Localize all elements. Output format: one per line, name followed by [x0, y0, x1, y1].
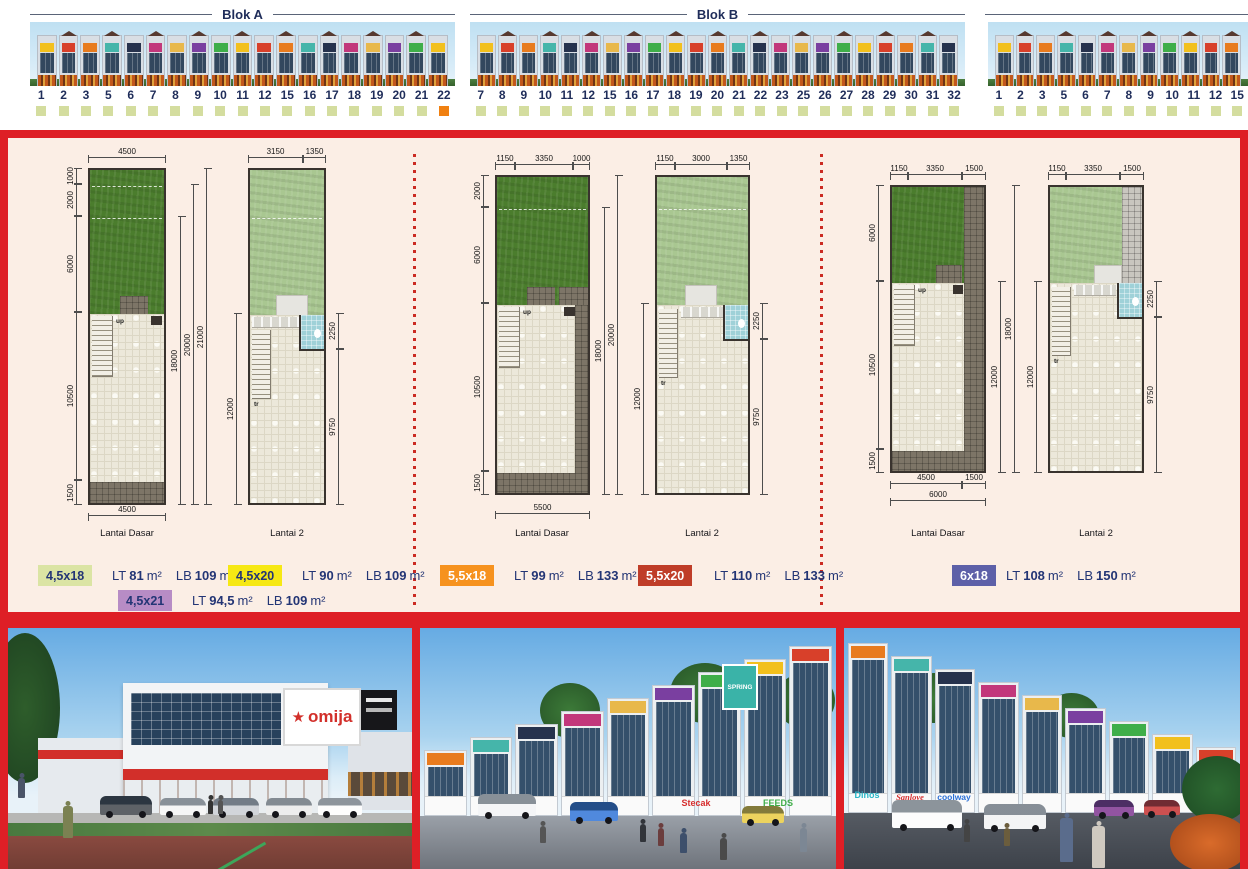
car: [100, 796, 152, 815]
facade-unit: [80, 35, 100, 86]
dim-bottom: 4500: [890, 483, 962, 484]
facade-unit: [939, 35, 958, 86]
roof-gable: [148, 31, 164, 36]
roof-gable: [61, 31, 77, 36]
unit-number: 8: [172, 88, 179, 102]
roof-gable: [710, 31, 726, 36]
setback-dashline: [92, 186, 162, 187]
spring-sign-text: SPRING: [728, 684, 753, 691]
dim-top: 1150: [1048, 174, 1066, 175]
dim-left: 6000: [76, 216, 77, 312]
facade-window: [921, 53, 934, 73]
header-rule: [748, 14, 965, 15]
dim-right: 2250: [1156, 281, 1157, 317]
coolway-sign-text: coolway: [932, 792, 976, 802]
bathroom: [299, 315, 324, 351]
facade-unit: [813, 35, 832, 86]
facade-unit: [146, 35, 166, 86]
blok-a-unit-row: 123567891011121516171819202122: [30, 88, 455, 116]
billboard: [851, 646, 885, 658]
cyclist-figure: [63, 806, 73, 838]
unit-status-square: [648, 106, 658, 116]
shophouse-slab: [607, 698, 650, 816]
unit-status-square: [669, 106, 679, 116]
facade-window: [257, 53, 271, 73]
facade-signboard: [1143, 43, 1156, 52]
facade-unit: [167, 35, 187, 86]
unit-cell: 3: [75, 88, 97, 116]
up-label: up: [918, 287, 926, 294]
person-figure: [800, 828, 807, 852]
dim-left: 12000: [236, 313, 237, 505]
plan-g3-lantai-dasar: up: [890, 185, 986, 473]
unit-number: 5: [105, 88, 112, 102]
unit-status-square: [842, 106, 852, 116]
facade-window: [1019, 53, 1032, 73]
car: [892, 800, 962, 828]
unit-number: 19: [689, 88, 702, 102]
facade-unit: [1181, 35, 1200, 86]
header-rule: [470, 14, 687, 15]
unit-status-square: [994, 106, 1004, 116]
facade-storefront: [1141, 75, 1158, 86]
facade-signboard: [900, 43, 913, 52]
facade-window: [774, 53, 787, 73]
facade-signboard: [753, 43, 766, 52]
roof-gable: [836, 31, 852, 36]
car: [266, 798, 312, 815]
unit-cell: 8: [492, 88, 514, 116]
facade-signboard: [431, 43, 445, 52]
unit-number: 7: [150, 88, 157, 102]
person-figure: [720, 838, 727, 860]
type-chip-45x20: 4,5x20: [228, 565, 282, 586]
unit-cell: 7: [470, 88, 492, 116]
blok-a-elevation: [30, 22, 455, 86]
facade-storefront: [1223, 75, 1240, 86]
side-roof: [1122, 187, 1144, 283]
unit-cell: 32: [943, 88, 965, 116]
shophouse-slab: [652, 685, 695, 816]
facade-signboard: [83, 43, 97, 52]
facade-signboard: [127, 43, 141, 52]
plan-caption: Lantai Dasar: [100, 528, 154, 539]
unit-status-square: [282, 106, 292, 116]
unit-cell: 10: [1161, 88, 1183, 116]
unit-cell: 12: [578, 88, 600, 116]
unit-status-square: [626, 106, 636, 116]
type-spec-45x20: LT90m² LB109m²: [302, 565, 425, 586]
unit-number: 9: [520, 88, 527, 102]
unit-status-square: [349, 106, 359, 116]
tr-label: tr: [661, 380, 666, 387]
shop-window: [895, 673, 927, 793]
plan-g1-lantai-dasar: up: [88, 168, 166, 505]
blok-b-title: Blok B: [687, 7, 748, 22]
facade-signboard: [1184, 43, 1197, 52]
roof-gable: [191, 31, 207, 36]
shop-window: [1113, 738, 1145, 793]
unit-number: 3: [83, 88, 90, 102]
facade-storefront: [147, 75, 165, 86]
facade-window: [480, 53, 493, 73]
facade-signboard: [409, 43, 423, 52]
unit-status-square: [1102, 106, 1112, 116]
unit-number: 6: [1082, 88, 1089, 102]
roof-gable: [1100, 31, 1116, 36]
unit-number: 32: [947, 88, 960, 102]
facade-window: [105, 53, 119, 73]
facade-storefront: [625, 75, 642, 86]
dim-left: 1000: [76, 168, 77, 184]
facade-storefront: [103, 75, 121, 86]
person-figure: [658, 828, 664, 846]
unit-number: 7: [1104, 88, 1111, 102]
facade-storefront: [299, 75, 317, 86]
dim-right: 20000: [193, 184, 194, 505]
facade-unit: [59, 35, 79, 86]
dim-left: 6000: [878, 185, 879, 281]
facade-unit: [750, 35, 769, 86]
blok-c-unit-row: 1235678910111215: [988, 88, 1248, 116]
facade-signboard: [1122, 43, 1135, 52]
billboard: [938, 672, 972, 684]
unit-status-square: [36, 106, 46, 116]
type-chip-55x18: 5,5x18: [440, 565, 494, 586]
unit-status-square: [863, 106, 873, 116]
facade-storefront: [1058, 75, 1075, 86]
facade-window: [858, 53, 871, 73]
photo-street-row-2: Dinos Sanlove coolway: [844, 628, 1240, 869]
facade-window: [585, 53, 598, 73]
dim-top: 1000: [573, 164, 590, 165]
facade-storefront: [364, 75, 382, 86]
facade-storefront: [877, 75, 894, 86]
unit-cell: 8: [164, 88, 186, 116]
facade-signboard: [1225, 43, 1238, 52]
facade-storefront: [429, 75, 447, 86]
omija-sign-text: omija: [308, 707, 352, 727]
dim-top: 3350: [908, 174, 962, 175]
roof-gable: [1141, 31, 1157, 36]
facade-unit: [1222, 35, 1241, 86]
dim-left: 1500: [878, 449, 879, 473]
unit-status-square: [906, 106, 916, 116]
unit-status-square: [439, 106, 449, 116]
facade-window: [669, 53, 682, 73]
facade-window: [1122, 53, 1135, 73]
facade-unit: [708, 35, 727, 86]
photo-anchor-building: ★ omija: [8, 628, 412, 869]
shaft: [151, 316, 162, 325]
shophouse-slab: [978, 682, 1018, 813]
facade-window: [301, 53, 315, 73]
unit-number: 10: [539, 88, 552, 102]
facade-storefront: [342, 75, 360, 86]
facade-storefront: [212, 75, 230, 86]
unit-number: 10: [1166, 88, 1179, 102]
facade-unit: [1160, 35, 1179, 86]
facade-signboard: [344, 43, 358, 52]
shop-window: [474, 754, 509, 796]
facade-signboard: [192, 43, 206, 52]
shop-window: [982, 699, 1014, 793]
paver-road: [8, 836, 412, 869]
red-band: [123, 769, 328, 780]
shophouse-slab: [1065, 708, 1105, 813]
dim-left: 10500: [76, 312, 77, 480]
unit-number: 6: [127, 88, 134, 102]
facade-window: [1081, 53, 1094, 73]
unit-cell: 1: [988, 88, 1010, 116]
dinos-sign-text: Dinos: [846, 790, 888, 800]
dim-right: 9750: [762, 339, 763, 495]
unit-cell: 9: [513, 88, 535, 116]
side-walkway: [575, 305, 590, 473]
dim-left: 6000: [483, 207, 484, 303]
facade-storefront: [688, 75, 705, 86]
unit-number: 16: [303, 88, 316, 102]
facade-unit: [876, 35, 895, 86]
unit-status-square: [417, 106, 427, 116]
unit-number: 12: [582, 88, 595, 102]
unit-number: 22: [437, 88, 450, 102]
facade-unit: [834, 35, 853, 86]
unit-status-square: [260, 106, 270, 116]
facade-unit: [276, 35, 296, 86]
facade-unit: [995, 35, 1014, 86]
dim-right: 9750: [338, 349, 339, 505]
up-label: up: [116, 318, 124, 325]
shop-window: [1069, 725, 1101, 793]
dotted-separator: [413, 154, 416, 609]
dim-right: 9750: [1156, 317, 1157, 473]
unit-cell: 31: [922, 88, 944, 116]
unit-cell: 6: [120, 88, 142, 116]
facade-storefront: [793, 75, 810, 86]
facade-unit: [918, 35, 937, 86]
facade-unit: [582, 35, 601, 86]
facade-storefront: [772, 75, 789, 86]
facade-storefront: [234, 75, 252, 86]
facade-unit: [406, 35, 426, 86]
facade-unit: [1078, 35, 1097, 86]
plan-g3-lantai-2: tr: [1048, 185, 1144, 473]
unit-cell: 26: [814, 88, 836, 116]
facade-window: [214, 53, 228, 73]
facade-signboard: [388, 43, 402, 52]
billboard: [1155, 737, 1189, 749]
unit-cell: 7: [142, 88, 164, 116]
facade-signboard: [279, 43, 293, 52]
facade-window: [606, 53, 619, 73]
dim-right: 12000: [1000, 281, 1001, 473]
unit-status-square: [1146, 106, 1156, 116]
facade-storefront: [520, 75, 537, 86]
unit-cell: 21: [728, 88, 750, 116]
roof-gable: [1017, 31, 1033, 36]
facade-unit: [1036, 35, 1055, 86]
facade-signboard: [564, 43, 577, 52]
unit-cell: 15: [599, 88, 621, 116]
dim-right: 20000: [617, 175, 618, 495]
unit-number: 16: [625, 88, 638, 102]
person-figure: [1060, 818, 1073, 862]
roof-gable: [668, 31, 684, 36]
unit-number: 21: [732, 88, 745, 102]
unit-number: 5: [1061, 88, 1068, 102]
facade-signboard: [62, 43, 76, 52]
facade-storefront: [856, 75, 873, 86]
facade-signboard: [879, 43, 892, 52]
unit-status-square: [583, 106, 593, 116]
dim-right: 2250: [762, 303, 763, 339]
facade-storefront: [583, 75, 600, 86]
header-rule: [30, 14, 212, 15]
unit-status-square: [1059, 106, 1069, 116]
facade-unit: [189, 35, 209, 86]
facade-storefront: [709, 75, 726, 86]
orange-bush: [1170, 814, 1240, 869]
facade-signboard: [606, 43, 619, 52]
unit-number: 15: [281, 88, 294, 102]
unit-status-square: [712, 106, 722, 116]
blok-b-unit-row: 7891011121516171819202122232526272829303…: [470, 88, 965, 116]
stairs: [1052, 287, 1071, 356]
billboard: [655, 688, 692, 700]
facade-storefront: [814, 75, 831, 86]
person-figure: [680, 833, 687, 853]
facade-unit: [1016, 35, 1035, 86]
shophouse-slab: [848, 643, 888, 813]
unit-cell: 19: [366, 88, 388, 116]
type-spec-45x18: LT81m² LB109m²: [112, 565, 235, 586]
facade-signboard: [236, 43, 250, 52]
dim-top: 1500: [962, 174, 986, 175]
unit-number: 2: [60, 88, 67, 102]
facade-signboard: [1081, 43, 1094, 52]
facade-window: [83, 53, 97, 73]
shaft: [564, 307, 575, 316]
roof-gable: [752, 31, 768, 36]
shophouse-row: [420, 646, 836, 816]
facade-window: [127, 53, 141, 73]
unit-cell: 8: [1118, 88, 1140, 116]
unit-cell: 17: [642, 88, 664, 116]
type-spec-45x21: LT94,5m² LB109m²: [192, 590, 325, 611]
facade-window: [1143, 53, 1156, 73]
unit-number: 8: [1126, 88, 1133, 102]
facade-signboard: [858, 43, 871, 52]
dim-bottom: 5500: [495, 513, 590, 514]
sign-line: [366, 708, 392, 712]
shop-window: [519, 741, 554, 796]
facade-signboard: [480, 43, 493, 52]
unit-number: 11: [236, 88, 249, 102]
billboard: [518, 727, 555, 739]
unit-cell: 30: [900, 88, 922, 116]
facade-signboard: [732, 43, 745, 52]
star-icon: ★: [292, 708, 305, 726]
facade-window: [543, 53, 556, 73]
facade-signboard: [257, 43, 271, 52]
unit-status-square: [476, 106, 486, 116]
unit-status-square: [798, 106, 808, 116]
dim-left: 1500: [483, 471, 484, 495]
carport-paving: [527, 287, 555, 305]
unit-number: 18: [668, 88, 681, 102]
facade-unit: [298, 35, 318, 86]
garden-area: [497, 177, 588, 305]
facade-window: [564, 53, 577, 73]
up-label: up: [523, 309, 531, 316]
facade-storefront: [255, 75, 273, 86]
unit-cell: 15: [276, 88, 298, 116]
facade-window: [1101, 53, 1114, 73]
unit-cell: 20: [388, 88, 410, 116]
facade-unit: [428, 35, 448, 86]
facade-unit: [687, 35, 706, 86]
unit-number: 11: [560, 88, 573, 102]
facade-storefront: [190, 75, 208, 86]
facade-window: [192, 53, 206, 73]
unit-number: 19: [370, 88, 383, 102]
roof-gable: [626, 31, 642, 36]
stairs: [659, 309, 678, 378]
plan-g2-lantai-2: tr: [655, 175, 750, 495]
facade-storefront: [1079, 75, 1096, 86]
facade-unit: [1057, 35, 1076, 86]
terrace-paving: [497, 473, 588, 495]
shophouse-slab: [891, 656, 931, 813]
facade-window: [900, 53, 913, 73]
facade-signboard: [1163, 43, 1176, 52]
facade-signboard: [105, 43, 119, 52]
dim-bottom: 4500: [88, 515, 166, 516]
dim-left: 2000: [76, 184, 77, 216]
shop-window: [428, 767, 463, 796]
facade-storefront: [499, 75, 516, 86]
unit-status-square: [327, 106, 337, 116]
facade-unit: [519, 35, 538, 86]
stairs: [252, 330, 271, 399]
unit-number: 18: [348, 88, 361, 102]
facade-unit: [603, 35, 622, 86]
unit-number: 1: [995, 88, 1002, 102]
dim-bottom: 6000: [890, 500, 986, 501]
facade-window: [711, 53, 724, 73]
facade-window: [816, 53, 829, 73]
unit-number: 11: [1188, 88, 1201, 102]
unit-status-square: [394, 106, 404, 116]
glass-curtain-wall: [131, 693, 281, 745]
dim-left: 12000: [643, 303, 644, 495]
facade-storefront: [60, 75, 78, 86]
unit-number: 10: [214, 88, 227, 102]
roof-gable: [408, 31, 424, 36]
type-chip-6x18: 6x18: [952, 565, 996, 586]
facade-storefront: [81, 75, 99, 86]
setback-dashline: [499, 209, 586, 210]
facade-window: [170, 53, 184, 73]
kitchen-counter: [252, 317, 300, 328]
shophouse-slab: [561, 711, 604, 816]
unit-status-square: [1016, 106, 1026, 116]
dim-top: 3350: [515, 164, 573, 165]
car: [570, 802, 618, 821]
billboard: [1068, 711, 1102, 723]
roof-gable: [500, 31, 516, 36]
